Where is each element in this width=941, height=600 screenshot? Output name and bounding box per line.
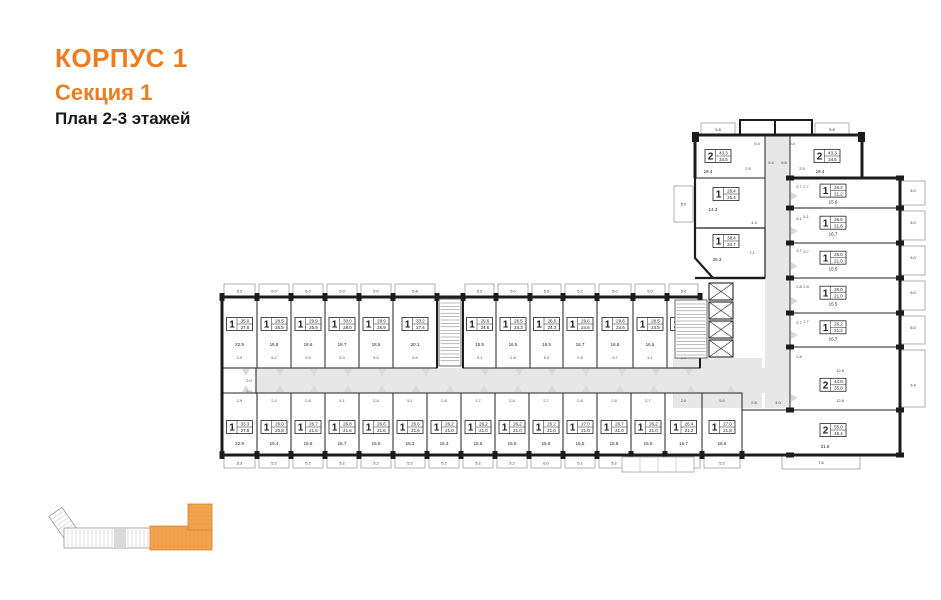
flat-total-area: 28.9	[377, 318, 386, 323]
flat-living-area: 24.3	[548, 325, 557, 330]
pier	[528, 293, 533, 301]
misc-area-label: 2.7	[796, 184, 802, 189]
flat-label: 126.421.2	[671, 421, 697, 434]
flat-living-area: 24.3	[514, 325, 523, 330]
balcony-area: 5.0	[647, 289, 653, 294]
balcony-area: 5.2	[719, 461, 725, 466]
flat-label: 126.020.8	[261, 421, 287, 434]
flat-label: 128.926.9	[363, 318, 389, 331]
bath-area: 2.7	[645, 398, 651, 403]
flat-room-count: 1	[536, 423, 542, 434]
room-area: 16.5	[646, 342, 655, 347]
door-swing	[791, 331, 798, 339]
flat-label: 126.721.0	[601, 421, 627, 434]
pier	[220, 451, 225, 459]
flat-living-area: 21.0	[547, 428, 556, 433]
flat-2-top-right[interactable]: 243.334.518.45.8	[814, 123, 849, 174]
flat-room-count: 1	[503, 320, 509, 331]
room-area: 14.3	[709, 207, 718, 212]
bath-area: 2.8	[441, 398, 447, 403]
flat[interactable]: 5.0126.021.015.52.8	[790, 278, 925, 313]
flat-room-count: 1	[570, 423, 576, 434]
flat-room-count: 1	[366, 320, 372, 331]
pier	[692, 132, 699, 142]
staircase	[675, 300, 707, 358]
flat-room-count: 1	[712, 423, 718, 434]
flat-room-count: 1	[298, 423, 304, 434]
flat-label: 126.221.2	[820, 184, 846, 197]
balcony-area: 5.2	[475, 461, 481, 466]
flat-total-area: 26.7	[309, 421, 318, 426]
bath-area: 2.9	[237, 355, 243, 360]
pier	[786, 311, 794, 316]
room-area: 15.5	[372, 441, 381, 446]
flat-living-area: 21.8	[723, 428, 732, 433]
misc-area-label: 4.3	[751, 220, 757, 225]
room-area: 18.7	[338, 342, 347, 347]
bath-area: 5.2	[271, 355, 277, 360]
balcony-area: 5.2	[271, 461, 277, 466]
pier	[220, 293, 225, 301]
door-swing	[791, 262, 798, 270]
room-area: 18.6	[304, 342, 313, 347]
flat-living-area: 21.0	[834, 294, 843, 299]
pier	[786, 176, 794, 181]
flat[interactable]: 9.4244.835.8	[790, 347, 925, 410]
pier	[289, 293, 294, 301]
bath-area: 2.7	[543, 398, 549, 403]
balcony	[901, 350, 925, 407]
flat-1-38[interactable]: 138.434.725.3	[713, 235, 739, 263]
flat[interactable]: 5.0126.221.215.62.7	[790, 178, 925, 208]
balcony	[901, 316, 925, 344]
flat-label: 126.524.3	[500, 318, 526, 331]
flat-1-28[interactable]: 128.425.414.35.0	[674, 186, 739, 222]
pier	[357, 451, 362, 459]
flat-label: 126.221.0	[465, 421, 491, 434]
flat-room-count: 2	[823, 380, 829, 391]
bath-area: 5.0	[373, 355, 379, 360]
door-swing	[791, 192, 798, 200]
bath-area: 2.7	[475, 398, 481, 403]
flat-living-area: 26.9	[309, 325, 318, 330]
pier	[665, 293, 670, 301]
bath-area: 5.1	[339, 398, 345, 403]
flat-room-count: 1	[536, 320, 542, 331]
bath-area: 2.8	[577, 355, 583, 360]
pier	[357, 293, 362, 301]
flat-living-area: 24.6	[616, 325, 625, 330]
pier	[786, 241, 794, 246]
flat-label: 126.021.0	[820, 286, 846, 299]
flat-total-area: 26.8	[343, 421, 352, 426]
flat-total-area: 26.4	[685, 421, 694, 426]
flat-total-area: 28.5	[651, 318, 660, 323]
room-area: 18.4	[704, 169, 713, 174]
bath-area: 2.7	[803, 319, 809, 324]
flat-label: 135.027.8	[227, 318, 253, 331]
pier	[786, 345, 794, 350]
room-area: 15.4	[270, 441, 279, 446]
balcony-area: 5.0	[910, 290, 916, 295]
flat-total-area: 26.2	[513, 421, 522, 426]
balcony-area: 5.8	[829, 127, 835, 132]
flat-label: 128.525.5	[261, 318, 287, 331]
flat-label: 126.221.0	[635, 421, 661, 434]
flat-living-area: 27.4	[416, 325, 425, 330]
outer-wall	[775, 120, 812, 135]
room-area: 18.5	[542, 342, 551, 347]
flat-room-count: 1	[332, 320, 338, 331]
bath-area: 2.8	[803, 284, 809, 289]
pier	[786, 206, 794, 211]
bath-area: 3.1	[647, 355, 653, 360]
flat-total-area: 44.8	[834, 379, 843, 384]
pier	[896, 408, 904, 413]
room-area: 16.7	[679, 441, 688, 446]
flat-living-area: 21.0	[513, 428, 522, 433]
flat-living-area: 21.6	[309, 428, 318, 433]
flat-label: 129.624.6	[567, 318, 593, 331]
bath-area: 2.8	[305, 398, 311, 403]
flat-total-area: 26.6	[377, 421, 386, 426]
flat-label: 126.221.0	[533, 421, 559, 434]
flat-living-area: 21.0	[581, 428, 590, 433]
flat-total-area: 43.3	[828, 150, 837, 155]
flat-total-area: 28.5	[275, 318, 284, 323]
pier	[858, 132, 865, 142]
flat-total-area: 33.2	[416, 318, 425, 323]
bath-area: 2.8	[510, 355, 516, 360]
flat-living-area: 21.6	[343, 428, 352, 433]
flat-room-count: 1	[638, 423, 644, 434]
flat-living-area: 26.9	[377, 325, 386, 330]
flat-room-count: 1	[434, 423, 440, 434]
flat-living-area: 21.0	[615, 428, 624, 433]
balcony-area: 5.1	[577, 461, 583, 466]
pier	[896, 345, 904, 350]
room-area: 16.7	[338, 441, 347, 446]
balcony-area: 6.0	[305, 289, 311, 294]
room-area: 15.6	[829, 200, 838, 205]
flat-living-area: 21.2	[834, 328, 843, 333]
flat-room-count: 1	[400, 423, 406, 434]
elevator-shaft	[709, 283, 733, 300]
flat-total-area: 26.0	[275, 421, 284, 426]
elevator-shaft	[709, 340, 733, 357]
flat-total-area: 26.2	[834, 322, 843, 327]
door-swing	[791, 394, 798, 402]
flat-label: 130.028.0	[329, 318, 355, 331]
pier	[896, 241, 904, 246]
floor-plan-page: КОРПУС 1 Секция 1 План 2-3 этажей 5.2135…	[0, 0, 941, 600]
balcony-area: 6.0	[271, 289, 277, 294]
flat-living-area: 34.7	[727, 242, 736, 247]
flat-living-area: 21.6	[834, 224, 843, 229]
balcony-area: 5.0	[544, 289, 550, 294]
flat-living-area: 25.4	[727, 195, 736, 200]
misc-area-label: 5.1	[796, 216, 802, 221]
balcony	[901, 281, 925, 310]
flat-room-count: 2	[823, 426, 829, 437]
room-area: 16.7	[829, 232, 838, 237]
flat-room-count: 2	[817, 152, 823, 163]
flat-2-corner[interactable]: 255.045.421.67.6	[782, 424, 860, 470]
flat-room-count: 1	[229, 320, 235, 331]
elevator-shaft	[709, 302, 733, 319]
flat-label: 126.721.6	[295, 421, 321, 434]
misc-area-label: 2.8	[796, 284, 802, 289]
flat-living-area: 25.5	[275, 325, 284, 330]
flat-room-count: 1	[570, 320, 576, 331]
pier	[896, 311, 904, 316]
flat-room-count: 1	[716, 190, 722, 201]
flat-room-count: 1	[298, 320, 304, 331]
pier	[323, 293, 328, 301]
outer-wall	[740, 120, 775, 135]
flat-label: 126.221.0	[431, 421, 457, 434]
flat-total-area: 43.3	[719, 150, 728, 155]
room-area: 21.6	[821, 444, 830, 449]
misc-area-label: 9.4	[789, 141, 795, 146]
room-area: 15.3	[440, 441, 449, 446]
flat-living-area: 21.6	[377, 428, 386, 433]
pier	[391, 451, 396, 459]
flat-label: 138.434.7	[713, 235, 739, 248]
flat-label: 244.835.8	[820, 378, 846, 391]
flat-total-area: 28.4	[727, 188, 736, 193]
room-area: 16.5	[611, 342, 620, 347]
flat-living-area: 21.6	[411, 428, 420, 433]
misc-area-label: 2.8	[751, 400, 757, 405]
room-area: 20.1	[411, 342, 420, 347]
misc-area-label: 2.9	[799, 166, 805, 171]
staircase	[439, 299, 461, 366]
door-swing	[791, 297, 798, 305]
room-area: 15.6	[718, 441, 727, 446]
pier	[493, 451, 498, 459]
flat-total-area: 26.6	[411, 421, 420, 426]
room-area: 16.5	[475, 342, 484, 347]
misc-area-label: 2.9	[745, 166, 751, 171]
staircase-box	[675, 300, 707, 358]
minimap	[49, 504, 212, 550]
flat-total-area: 55.0	[834, 424, 843, 429]
bath-area: 2.8	[681, 398, 687, 403]
room-area: 15.5	[542, 441, 551, 446]
elevator-shaft	[709, 321, 733, 338]
flat-label: 129.624.6	[467, 318, 493, 331]
room-area: 25.3	[713, 257, 722, 262]
flat-total-area: 30.0	[343, 318, 352, 323]
minimap-highlighted-section[interactable]	[150, 504, 212, 550]
pier	[255, 451, 260, 459]
balcony-area: 5.2	[611, 461, 617, 466]
balcony-area: 5.2	[509, 461, 515, 466]
room-area: 15.5	[508, 441, 517, 446]
bath-area: 2.8	[611, 398, 617, 403]
flat-total-area: 26.5	[548, 318, 557, 323]
balcony-area: 5.0	[510, 289, 516, 294]
bath-area: 5.6	[719, 398, 725, 403]
bath-area: 5.0	[544, 355, 550, 360]
flat-room-count: 1	[823, 253, 829, 264]
pier	[391, 293, 396, 301]
flat-total-area: 33.3	[241, 421, 250, 426]
staircase-box	[439, 299, 461, 366]
flat-label: 128.425.4	[713, 188, 739, 201]
balcony-area: 5.0	[681, 289, 687, 294]
balcony-area: 5.0	[910, 255, 916, 260]
flat-label: 133.227.4	[402, 318, 428, 331]
pier	[425, 451, 430, 459]
bath-area: 2.8	[373, 398, 379, 403]
flat-room-count: 1	[469, 320, 475, 331]
flat-room-count: 1	[502, 423, 508, 434]
flat-total-area: 26.2	[547, 421, 556, 426]
flat-label: 243.334.5	[705, 150, 731, 163]
balcony-area: 6.0	[543, 461, 549, 466]
balcony-area: 5.2	[477, 289, 483, 294]
flat-total-area: 38.4	[727, 235, 736, 240]
flat-room-count: 1	[823, 218, 829, 229]
misc-area-label: 2.8	[796, 354, 802, 359]
misc-area-label: 2.7	[796, 320, 802, 325]
flat-room-count: 1	[264, 320, 270, 331]
flat-total-area: 29.9	[309, 318, 318, 323]
flat-living-area: 24.5	[651, 325, 660, 330]
flat-living-area: 35.8	[834, 386, 843, 391]
flat-total-area: 29.6	[581, 318, 590, 323]
flat-label: 127.021.0	[567, 421, 593, 434]
pier	[786, 453, 794, 458]
pier	[740, 451, 745, 459]
flat-label: 255.045.4	[820, 424, 846, 437]
balcony-area: 5.0	[339, 289, 345, 294]
flat-label: 126.621.6	[820, 216, 846, 229]
room-area: 16.8	[270, 342, 279, 347]
pier	[527, 451, 532, 459]
flat-living-area: 21.0	[649, 428, 658, 433]
flat-label: 133.327.8	[227, 421, 253, 434]
pier	[289, 451, 294, 459]
pier	[595, 293, 600, 301]
flat-label: 129.926.9	[295, 318, 321, 331]
misc-area-label: 7.1	[749, 250, 755, 255]
flat-living-area: 21.2	[685, 428, 694, 433]
pier	[631, 293, 636, 301]
misc-area-label: 4.0	[775, 400, 781, 405]
balcony-area: 5.2	[373, 461, 379, 466]
pier	[896, 453, 904, 458]
flat-total-area: 26.2	[479, 421, 488, 426]
bath-area: 3.7	[803, 249, 809, 254]
room-area: 16.7	[829, 336, 838, 341]
flat-living-area: 20.8	[275, 428, 284, 433]
flat-living-area: 34.5	[828, 157, 837, 162]
pier	[700, 451, 705, 459]
flat-room-count: 1	[673, 423, 679, 434]
balcony-area: 5.2	[305, 461, 311, 466]
pier	[786, 276, 794, 281]
door-swing	[242, 369, 250, 376]
misc-area-label: 12.8	[836, 368, 845, 373]
flat-living-area: 27.8	[241, 428, 250, 433]
flat-living-area: 24.6	[481, 325, 490, 330]
minimap-core	[114, 529, 126, 547]
pier	[561, 293, 566, 301]
flat-total-area: 26.0	[834, 252, 843, 257]
room-area: 15.8	[610, 441, 619, 446]
flat-label: 129.624.6	[602, 318, 628, 331]
balcony-area: 5.2	[407, 461, 413, 466]
bath-area: 2.8	[509, 398, 515, 403]
balcony-area: 5.8	[715, 127, 721, 132]
misc-area-label: 2.0	[246, 378, 252, 383]
flat-label: 126.821.6	[329, 421, 355, 434]
flat-total-area: 26.2	[834, 185, 843, 190]
flat-label: 126.021.0	[820, 251, 846, 264]
pier	[896, 276, 904, 281]
pier	[896, 176, 904, 181]
flat-total-area: 29.6	[481, 318, 490, 323]
flat[interactable]: 5.0126.021.015.53.7	[790, 243, 925, 278]
flat-label: 126.524.3	[534, 318, 560, 331]
flat-label: 126.621.6	[397, 421, 423, 434]
flat-room-count: 1	[823, 186, 829, 197]
flat-total-area: 27.0	[723, 421, 732, 426]
balcony-area: 5.0	[373, 289, 379, 294]
flat-label: 128.524.5	[637, 318, 663, 331]
flat[interactable]: 5.0126.221.216.72.7	[790, 313, 925, 347]
misc-area-label: 5.4	[768, 160, 774, 165]
balcony	[901, 211, 925, 240]
flat-room-count: 1	[366, 423, 372, 434]
flat-total-area: 29.6	[616, 318, 625, 323]
flat-room-count: 1	[332, 423, 338, 434]
balcony-area: 5.3	[237, 461, 243, 466]
balcony-area: 5.2	[577, 289, 583, 294]
flat-label: 126.221.0	[499, 421, 525, 434]
room-area: 22.9	[235, 342, 244, 347]
entrance-porch	[622, 457, 694, 472]
pier	[255, 293, 260, 301]
balcony-area: 5.0	[910, 188, 916, 193]
balcony-area: 5.8	[412, 289, 418, 294]
pier	[494, 293, 499, 301]
flat-room-count: 1	[823, 323, 829, 334]
bath-area: 5.1	[407, 398, 413, 403]
flat-living-area: 28.0	[343, 325, 352, 330]
misc-area-label: 3.7	[796, 248, 802, 253]
pier	[323, 451, 328, 459]
bath-area: 3.5	[305, 355, 311, 360]
flat-living-area: 21.2	[834, 192, 843, 197]
bath-area: 5.6	[412, 355, 418, 360]
flat[interactable]: 5.0126.621.616.75.1	[790, 208, 925, 243]
flat-2-top-left[interactable]: 243.334.518.45.8	[701, 123, 735, 174]
room-area: 15.5	[644, 441, 653, 446]
flat-room-count: 1	[229, 423, 235, 434]
flat-total-area: 26.2	[445, 421, 454, 426]
balcony-area: 7.6	[818, 460, 824, 465]
balcony-area: 5.2	[237, 289, 243, 294]
room-area: 15.5	[829, 302, 838, 307]
flat-living-area: 21.0	[479, 428, 488, 433]
bath-area: 3.1	[477, 355, 483, 360]
flat-total-area: 26.6	[834, 217, 843, 222]
pier	[595, 451, 600, 459]
